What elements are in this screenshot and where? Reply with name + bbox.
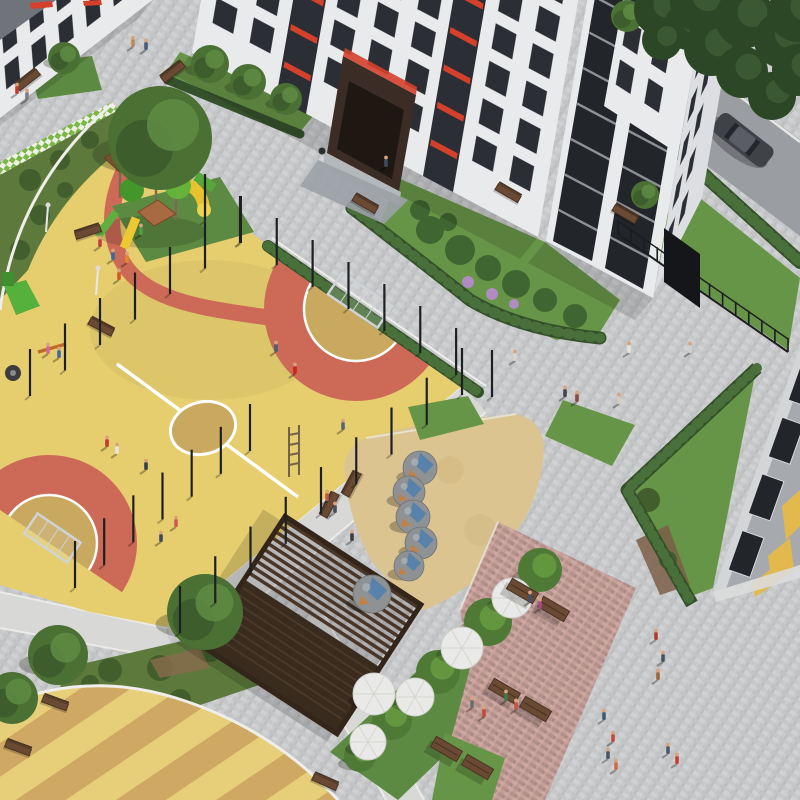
dome-highlight [401,483,408,490]
person-head [333,502,337,506]
person-body [602,712,606,720]
person-body [174,519,178,527]
tree-canopy-light [6,679,32,705]
person-body [144,462,148,470]
person-body [688,345,692,353]
person-body [661,654,665,662]
person-head [666,743,670,747]
person-body [611,734,615,742]
person-body [656,672,660,680]
person-head [15,83,19,87]
person-head [528,591,532,595]
tree-canopy-light [282,87,298,103]
person-body [513,353,517,361]
tree-highlight [532,554,556,578]
person-head [514,699,518,703]
person-head [174,516,178,520]
person-head [675,753,679,757]
person-body [654,632,658,640]
person-body [139,227,143,235]
person-body [293,366,297,374]
person-head [614,759,618,763]
person-body [528,594,532,602]
person-body [666,746,670,754]
person-body [325,493,329,501]
person-head [563,386,567,390]
person-head [111,249,115,253]
person-body [111,252,115,260]
person-body [46,346,50,354]
person-head [350,530,354,534]
person-head [46,343,50,347]
person-head [131,36,135,40]
person-body [470,700,474,708]
person-body [575,394,579,402]
person-body [614,762,618,770]
dark-tree-highlight [736,54,762,80]
person-head [688,342,692,346]
dark-tree-highlight [657,26,677,46]
person-body [117,272,121,280]
tree-canopy-light [205,50,224,69]
person-head [144,459,148,463]
person-head [513,350,517,354]
person-head [159,531,163,535]
person-head [115,443,119,447]
person-body [563,389,567,397]
person-head [57,347,61,351]
person-head [482,706,486,710]
dome-highlight [362,583,370,591]
person-body [482,709,486,717]
person-body [25,92,29,100]
person-body [57,350,61,358]
dome-highlight [404,507,411,514]
person-head [384,156,388,160]
person-body [125,255,129,263]
person-head [470,697,474,701]
lamp-head [96,266,101,271]
person-body [105,439,109,447]
dome-highlight [413,534,420,541]
person-head [325,490,329,494]
tree-canopy-light [244,69,262,87]
sand-shade [436,456,464,484]
person-body [504,693,508,701]
tree-canopy-light [147,99,199,151]
person-head [293,363,297,367]
person-head [606,748,610,752]
person-head [504,690,508,694]
person-head [538,598,542,602]
person-head [144,39,148,43]
person-body [341,422,345,430]
dome-highlight [401,557,408,564]
person-body [538,601,542,609]
person-body [675,756,679,764]
lamp-head [46,203,51,208]
trash-bin [319,148,326,155]
tire-hole [10,370,16,376]
person-head [627,342,631,346]
person-body [606,751,610,759]
person-body [274,344,278,352]
person-head [617,393,621,397]
tree-canopy-light [60,46,76,62]
person-body [15,86,19,94]
person-head [661,651,665,655]
tree-canopy-light [51,633,81,663]
person-head [341,419,345,423]
person-head [654,629,658,633]
person-head [611,731,615,735]
person-body [514,702,518,710]
person-body [98,239,102,247]
dome-highlight [411,458,418,465]
tree-canopy-light [642,185,656,199]
person-head [139,224,143,228]
person-head [25,89,29,93]
person-head [274,341,278,345]
red-accent [83,0,102,6]
person-body [131,39,135,47]
person-body [627,345,631,353]
person-head [656,669,660,673]
person-body [144,42,148,50]
courtyard-aerial-render [0,0,800,800]
person-head [125,252,129,256]
person-head [117,269,121,273]
person-head [98,236,102,240]
person-head [575,391,579,395]
person-body [159,534,163,542]
scene-svg [0,0,800,800]
person-body [115,446,119,454]
person-head [105,436,109,440]
person-body [350,533,354,541]
person-body [384,159,388,167]
person-body [333,505,337,513]
person-body [617,396,621,404]
person-head [602,709,606,713]
slide-tower [2,272,14,286]
